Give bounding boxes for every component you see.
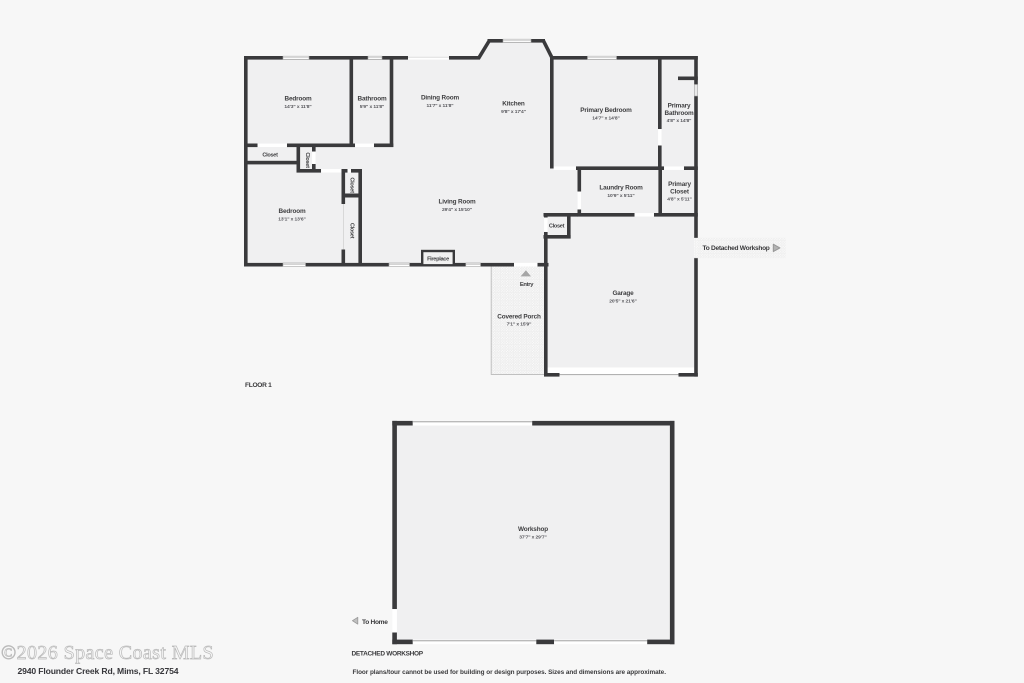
svg-text:37'7" x 29'7": 37'7" x 29'7"	[519, 534, 546, 540]
svg-text:11'7" x 11'8": 11'7" x 11'8"	[427, 103, 454, 109]
svg-text:Bathroom: Bathroom	[665, 110, 694, 117]
svg-text:20'5" x 21'6": 20'5" x 21'6"	[609, 298, 636, 304]
svg-text:Fireplace: Fireplace	[427, 256, 449, 262]
svg-text:Closet: Closet	[304, 152, 310, 168]
svg-text:Primary: Primary	[668, 103, 691, 110]
svg-text:To Detached Workshop: To Detached Workshop	[703, 245, 770, 252]
svg-text:14'7" x 14'8": 14'7" x 14'8"	[592, 115, 619, 121]
svg-text:4'8" x 14'8": 4'8" x 14'8"	[667, 118, 692, 124]
svg-text:Closet: Closet	[349, 223, 355, 239]
svg-text:Covered Porch: Covered Porch	[497, 313, 541, 320]
svg-text:DETACHED WORKSHOP: DETACHED WORKSHOP	[352, 651, 424, 658]
svg-text:9'8" x 17'4": 9'8" x 17'4"	[501, 109, 526, 115]
svg-text:Closet: Closet	[549, 224, 565, 230]
svg-text:5'9" x 11'8": 5'9" x 11'8"	[360, 104, 385, 110]
svg-text:Kitchen: Kitchen	[502, 101, 525, 108]
svg-text:Closet: Closet	[349, 177, 355, 193]
svg-text:Garage: Garage	[612, 290, 634, 297]
svg-text:Bedroom: Bedroom	[285, 96, 312, 103]
svg-text:Dining Room: Dining Room	[421, 95, 460, 102]
svg-text:Closet: Closet	[262, 152, 278, 158]
svg-text:FLOOR 1: FLOOR 1	[245, 382, 272, 389]
svg-text:To Home: To Home	[362, 619, 388, 626]
svg-text:Bathroom: Bathroom	[358, 96, 387, 103]
svg-text:Bedroom: Bedroom	[279, 208, 306, 215]
svg-text:4'8" x 5'11": 4'8" x 5'11"	[667, 196, 692, 202]
svg-text:Primary Bedroom: Primary Bedroom	[580, 107, 632, 114]
svg-text:Living Room: Living Room	[438, 199, 476, 206]
svg-text:Closet: Closet	[670, 188, 690, 195]
svg-text:Workshop: Workshop	[518, 526, 548, 533]
svg-text:13'1" x 13'6": 13'1" x 13'6"	[278, 216, 305, 222]
svg-text:7'1" x 15'9": 7'1" x 15'9"	[507, 322, 532, 328]
svg-text:Laundry Room: Laundry Room	[599, 185, 643, 192]
svg-text:2940 Flounder Creek Rd, Mims,: 2940 Flounder Creek Rd, Mims, FL 32754	[18, 666, 179, 676]
svg-text:Primary: Primary	[668, 181, 691, 188]
svg-text:©2026 Space Coast MLS: ©2026 Space Coast MLS	[1, 642, 214, 664]
svg-text:29'4" x 15'10": 29'4" x 15'10"	[442, 207, 472, 213]
svg-text:10'9" x 5'11": 10'9" x 5'11"	[607, 193, 634, 199]
svg-text:14'3" x 11'8": 14'3" x 11'8"	[284, 104, 311, 110]
svg-text:Entry: Entry	[520, 282, 534, 288]
svg-text:Floor plans/tour cannot be use: Floor plans/tour cannot be used for buil…	[353, 669, 667, 676]
